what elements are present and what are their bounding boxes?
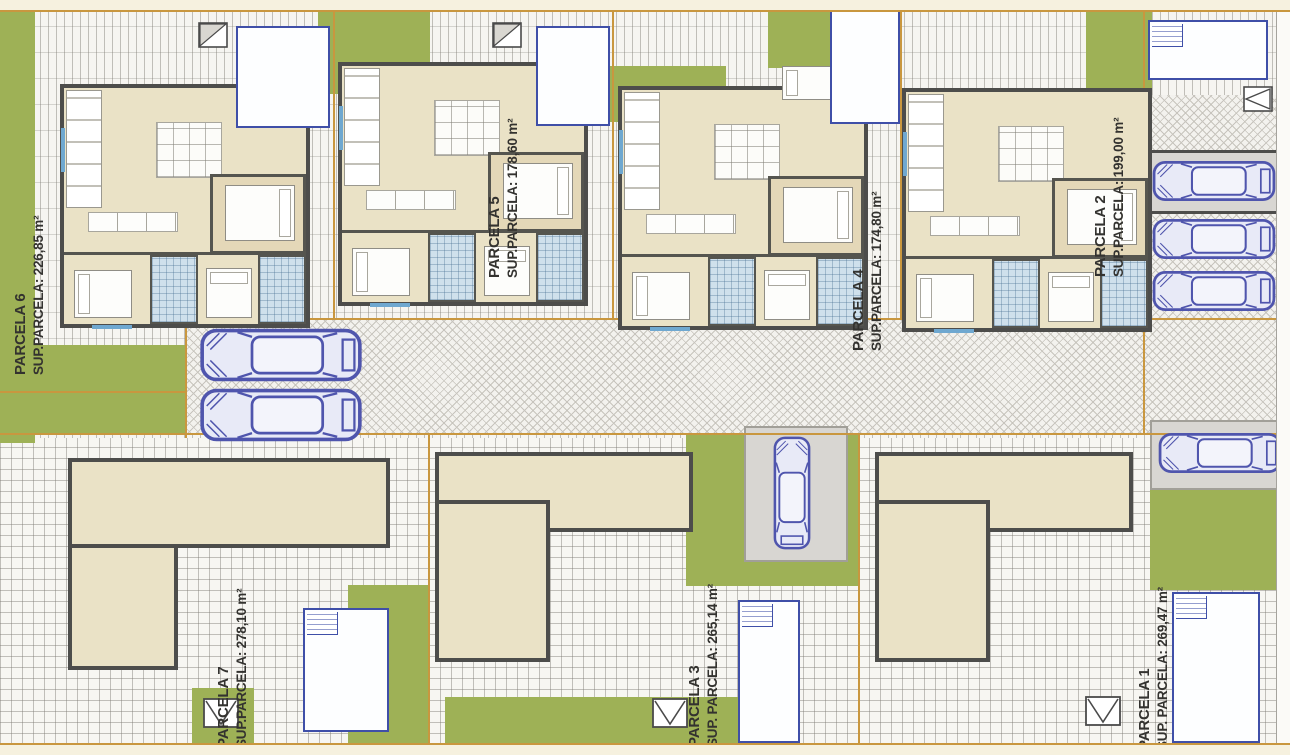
dining-table	[714, 124, 780, 180]
envelope-marker-icon	[1085, 696, 1121, 726]
window	[934, 329, 974, 333]
site-plan: PARCELA 6 SUP.PARCELA: 226,85 m² PARCELA…	[0, 0, 1290, 755]
label-parcela-7: PARCELA 7 SUP.PARCELA: 278,10 m²	[215, 518, 269, 748]
car-icon	[195, 386, 367, 444]
pool-parcela-2	[1148, 20, 1268, 80]
lot-line-p6-p5	[333, 12, 335, 318]
parcel-area: SUP.PARCELA: 174,80 m²	[869, 126, 886, 351]
window	[903, 132, 907, 176]
sofa	[88, 212, 178, 232]
top-boundary-band	[0, 0, 1290, 12]
window	[339, 106, 343, 150]
window	[650, 327, 690, 331]
car-icon	[1152, 216, 1276, 262]
bathroom	[708, 257, 756, 326]
kitchen-counter	[624, 92, 660, 210]
pillow	[356, 252, 368, 292]
pool-steps	[307, 612, 338, 635]
pillow	[920, 278, 932, 318]
lot-line-p3-p1	[858, 435, 860, 743]
kitchen-counter	[344, 68, 380, 186]
house-wing	[68, 544, 178, 670]
pillow	[1052, 276, 1090, 288]
parcel-name: PARCELA 1	[1136, 522, 1155, 750]
car-icon	[764, 436, 820, 550]
pillow	[279, 189, 291, 237]
envelope-marker-icon	[652, 698, 688, 728]
lot-line-p7-p3	[428, 435, 430, 743]
pillow	[210, 272, 248, 284]
triangle-marker-icon	[198, 22, 228, 48]
parcel-area: SUP. PARCELA: 265,14 m²	[705, 522, 722, 747]
parcel-name: PARCELA 4	[850, 126, 869, 351]
bed	[632, 272, 690, 320]
bed	[1048, 272, 1094, 322]
bed	[916, 274, 974, 322]
pool-steps	[1152, 24, 1183, 47]
bed	[225, 185, 295, 241]
bathroom	[992, 259, 1040, 328]
bed	[74, 270, 132, 318]
parcel-area: SUP.PARCELA: 278,10 m²	[234, 518, 251, 748]
green-top-3	[768, 12, 830, 68]
window	[619, 130, 623, 174]
parcel-name: PARCELA 5	[486, 48, 505, 278]
parcel-name: PARCELA 3	[686, 522, 705, 747]
road-bottom-edge	[0, 433, 1290, 435]
bed	[352, 248, 410, 296]
pillow	[768, 274, 806, 286]
pool-parcela-7	[303, 608, 389, 732]
parcel-area: SUP.PARCELA: 178,60 m²	[505, 48, 522, 278]
car-icon	[1158, 426, 1282, 480]
triangle-left-marker-icon	[1243, 86, 1273, 112]
pool-steps	[742, 604, 773, 627]
kitchen-counter	[66, 90, 102, 208]
pool-parcela-3	[738, 600, 800, 743]
label-parcela-1: PARCELA 1 SUP. PARCELA: 269,47 m²	[1136, 522, 1190, 750]
pillow	[636, 276, 648, 316]
house-wing	[875, 500, 990, 662]
car-icon	[1152, 158, 1276, 204]
label-parcela-5: PARCELA 5 SUP.PARCELA: 178,60 m²	[486, 48, 538, 278]
sun-lounger	[782, 66, 834, 100]
sofa	[930, 216, 1020, 236]
bed	[764, 270, 810, 320]
bed	[206, 268, 252, 318]
bathroom	[428, 233, 476, 302]
triangle-marker-icon	[492, 22, 522, 48]
pool-parcela-6	[236, 26, 330, 128]
label-parcela-6: PARCELA 6 SUP.PARCELA: 226,85 m²	[12, 140, 64, 375]
pool-parcela-5	[536, 26, 610, 126]
bathroom	[536, 233, 584, 302]
bed	[783, 187, 853, 243]
bathroom	[258, 255, 306, 324]
sofa	[366, 190, 456, 210]
parcel-name: PARCELA 2	[1092, 52, 1111, 277]
window	[370, 303, 410, 307]
right-margin-gutter	[1276, 10, 1290, 743]
pool-parcela-4	[830, 4, 900, 124]
sofa	[646, 214, 736, 234]
bottom-boundary-band	[0, 743, 1290, 755]
green-divider-line	[0, 391, 185, 393]
lot-line-p5-p4	[612, 12, 614, 318]
pillow	[557, 167, 569, 215]
pillow	[78, 274, 90, 314]
parcel-name: PARCELA 6	[12, 140, 31, 375]
parcel-name: PARCELA 7	[215, 518, 234, 748]
window	[92, 325, 132, 329]
dining-table	[998, 126, 1064, 182]
label-parcela-2: PARCELA 2 SUP.PARCELA: 199,00 m²	[1092, 52, 1144, 277]
pillow	[786, 70, 798, 96]
parcel-area: SUP.PARCELA: 199,00 m²	[1111, 52, 1128, 277]
car-icon	[1152, 268, 1276, 314]
master-bedroom	[210, 174, 306, 254]
parcel-area: SUP. PARCELA: 269,47 m²	[1155, 522, 1172, 750]
bathroom	[150, 255, 198, 324]
pillow	[837, 191, 849, 239]
kitchen-counter	[908, 94, 944, 212]
car-icon	[195, 326, 367, 384]
dining-table	[156, 122, 222, 178]
road-left-edge	[185, 318, 187, 438]
parcel-area: SUP.PARCELA: 226,85 m²	[31, 140, 48, 375]
house-wing	[435, 500, 550, 662]
label-parcela-3: PARCELA 3 SUP. PARCELA: 265,14 m²	[686, 522, 740, 747]
house-parcela-3	[435, 452, 693, 662]
house-parcela-1	[875, 452, 1133, 662]
label-parcela-4: PARCELA 4 SUP.PARCELA: 174,80 m²	[850, 126, 902, 351]
